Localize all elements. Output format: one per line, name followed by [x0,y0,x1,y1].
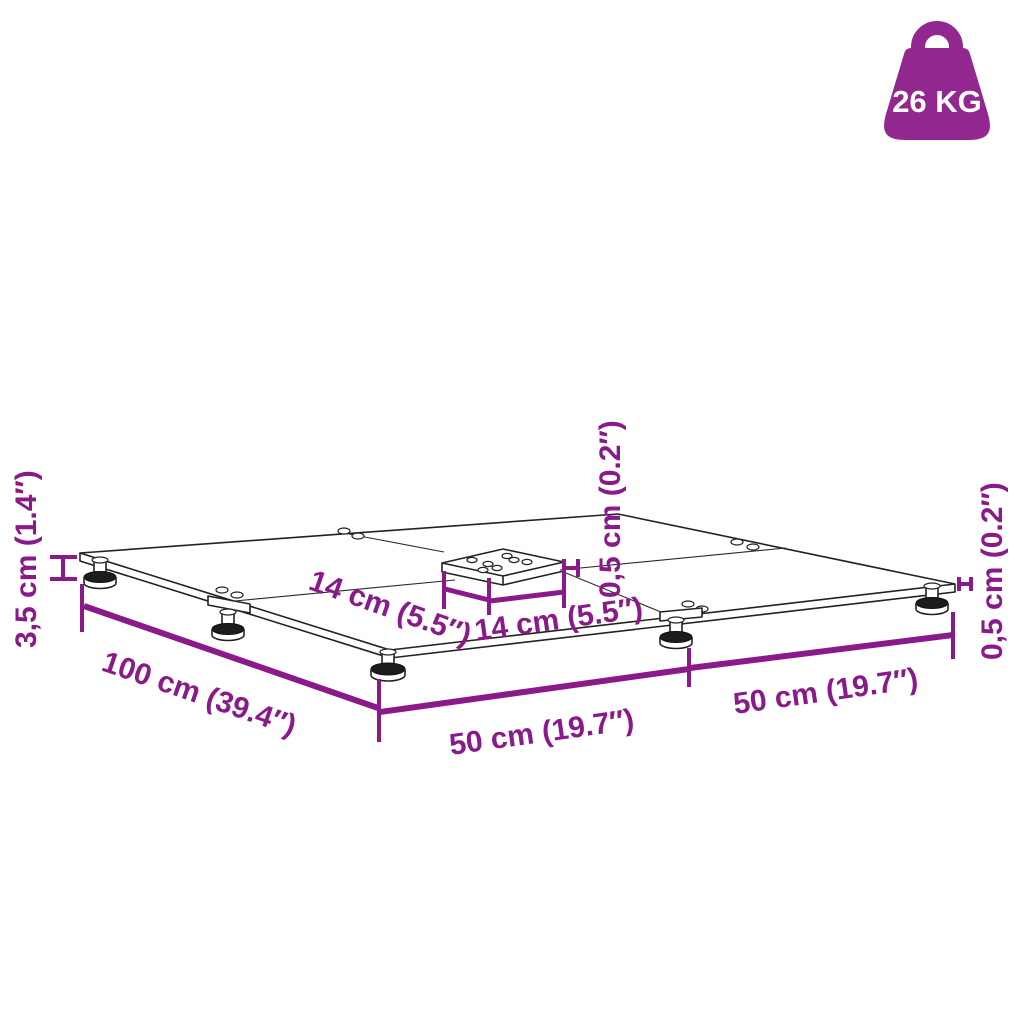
thickness-h-marker-right [959,577,971,591]
weight-badge: 26 KG [884,28,990,140]
thickness-right-label: 0,5 cm (0.2″) [976,482,1009,660]
line-50cm-front [380,669,689,712]
foot-front-left-mid [212,609,244,641]
dimension-diagram: 3,5 cm (1.4″) 100 cm (39.4″) 50 cm (19.7… [0,0,1024,1024]
foot-front-right-mid [660,617,692,649]
diagram-page: 3,5 cm (1.4″) 100 cm (39.4″) 50 cm (19.7… [0,0,1024,1024]
front-left-half-label: 50 cm (19.7″) [447,703,636,762]
height-label: 3,5 cm (1.4″) [10,470,43,648]
height-ibeam-marker [50,557,77,579]
weight-badge-label: 26 KG [892,84,982,119]
thickness-center-label: 0,5 cm (0.2″) [594,420,627,598]
front-right-half-label: 50 cm (19.7″) [731,662,920,721]
total-width-label: 100 cm (39.4″) [98,645,301,742]
